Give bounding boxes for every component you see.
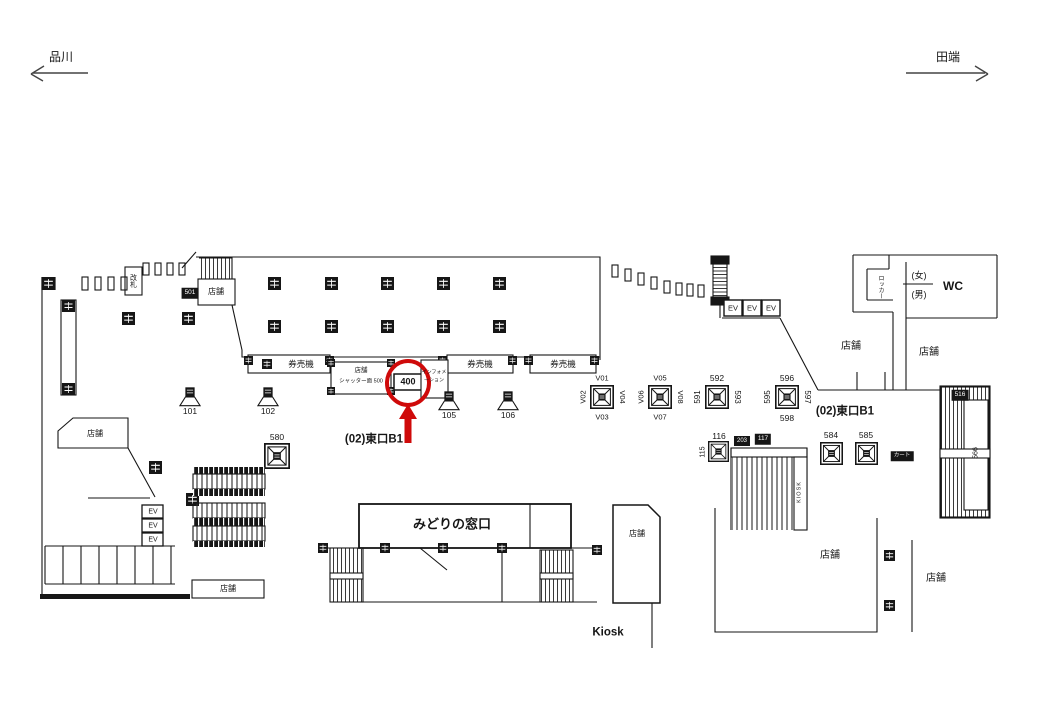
pillar-116-label: 116	[712, 432, 726, 441]
pillar-593-label: 593	[733, 390, 741, 403]
pillar-v05-label: V05	[653, 374, 666, 382]
structural-pillars	[122, 277, 506, 333]
ad-tag-501: 501	[182, 288, 199, 299]
floorplan-linework	[0, 0, 1040, 720]
shutter-store-box	[327, 359, 395, 395]
midori-office-label: みどりの窓口	[413, 518, 491, 531]
station-floorplan: 品川 田端 改札 501 店舗 券売機 券売機 券売機 店舗 シャッター面 50…	[0, 0, 1040, 720]
locker-label: ロッカー	[877, 275, 883, 299]
sign-106-label: 106	[501, 411, 515, 420]
ticket-gate-label: 改札	[130, 274, 137, 288]
pillar-v02-label: V02	[579, 390, 587, 403]
platform-comb-left	[40, 546, 190, 599]
elevator-label-1: EV	[728, 304, 738, 312]
store-label-right-2: 店舗	[919, 348, 939, 358]
pillar-v01-label: V01	[595, 374, 608, 382]
stairs-far-right	[940, 386, 990, 518]
pillar-v07-label: V07	[653, 413, 666, 421]
wc-women-label: (女)	[912, 272, 927, 281]
station-left-label: 品川	[49, 51, 73, 63]
pillar-584-label: 584	[824, 431, 838, 440]
left-store-trapezoid	[58, 418, 199, 506]
east-exit-label-2: (02)東口B1	[816, 406, 874, 418]
pillar-597-label: 597	[803, 390, 811, 403]
pillar-115-label: 115	[700, 446, 707, 457]
ad-tag-117: 117	[755, 434, 771, 445]
ad-tag-203: 203	[734, 436, 750, 446]
direction-arrow-left	[31, 66, 88, 81]
kiosk-vertical-label: KIOSK	[797, 481, 803, 503]
highlighted-ad-number: 400	[400, 378, 415, 387]
ticket-machine-label-2: 券売機	[467, 360, 493, 369]
wc-men-label: (男)	[912, 291, 927, 300]
pillar-591-label: 591	[694, 390, 702, 403]
pillar-v08-label: V08	[676, 390, 684, 403]
store-label-right-1: 店舗	[841, 342, 861, 352]
information-label-2: ーション	[424, 379, 444, 384]
wc-label: WC	[943, 280, 963, 292]
pillar-592-label: 592	[710, 374, 724, 383]
store-label-left-trapezoid: 店舗	[87, 430, 103, 438]
ticket-machine-label-3: 券売機	[550, 360, 576, 369]
store-label-bottom-right-2: 店舗	[926, 574, 946, 584]
kiosk-label: Kiosk	[592, 627, 623, 639]
pillar-585-label: 585	[859, 431, 873, 440]
direction-arrow-right	[906, 66, 988, 81]
ticket-gates-right	[612, 265, 704, 297]
ticket-machine-label-1: 券売機	[288, 360, 314, 369]
station-right-label: 田端	[936, 51, 960, 63]
store-label-bottom-right-1: 店舗	[820, 551, 840, 561]
information-label-1: インフォメ	[422, 371, 447, 376]
paid-area-outline	[196, 257, 600, 360]
pillar-v06-label: V06	[637, 390, 645, 403]
sign-101-label: 101	[183, 407, 197, 416]
escalators-left	[193, 467, 265, 547]
elevator-label-2: EV	[747, 304, 757, 312]
east-exit-label-1: (02)東口B1	[345, 434, 403, 446]
pillar-598-label: 598	[780, 414, 794, 423]
pillar-595-label: 595	[764, 390, 772, 403]
shutter-face-label: シャッター面 500	[339, 379, 383, 385]
pillar-580-label: 580	[270, 433, 284, 442]
pillar-v04-label: V04	[618, 390, 626, 403]
shutter-store-label: 店舗	[355, 368, 368, 375]
pillar-596-label: 596	[780, 374, 794, 383]
elevator-left-label-2: EV	[148, 523, 157, 530]
pillar-566-label: 566	[973, 447, 980, 459]
cart-tag: カート	[891, 451, 914, 461]
store-label-bottom-left: 店舗	[220, 585, 236, 593]
store-label-upper-left: 店舗	[208, 288, 224, 296]
elevator-label-3: EV	[766, 304, 776, 312]
sign-105-label: 105	[442, 411, 456, 420]
ad-tag-516: 516	[952, 390, 969, 401]
elevator-left-label-1: EV	[148, 509, 157, 516]
elevator-left-label-3: EV	[148, 537, 157, 544]
pillar-v03-label: V03	[595, 413, 608, 421]
store-label-kiosk-box: 店舗	[629, 530, 645, 538]
sign-102-label: 102	[261, 407, 275, 416]
